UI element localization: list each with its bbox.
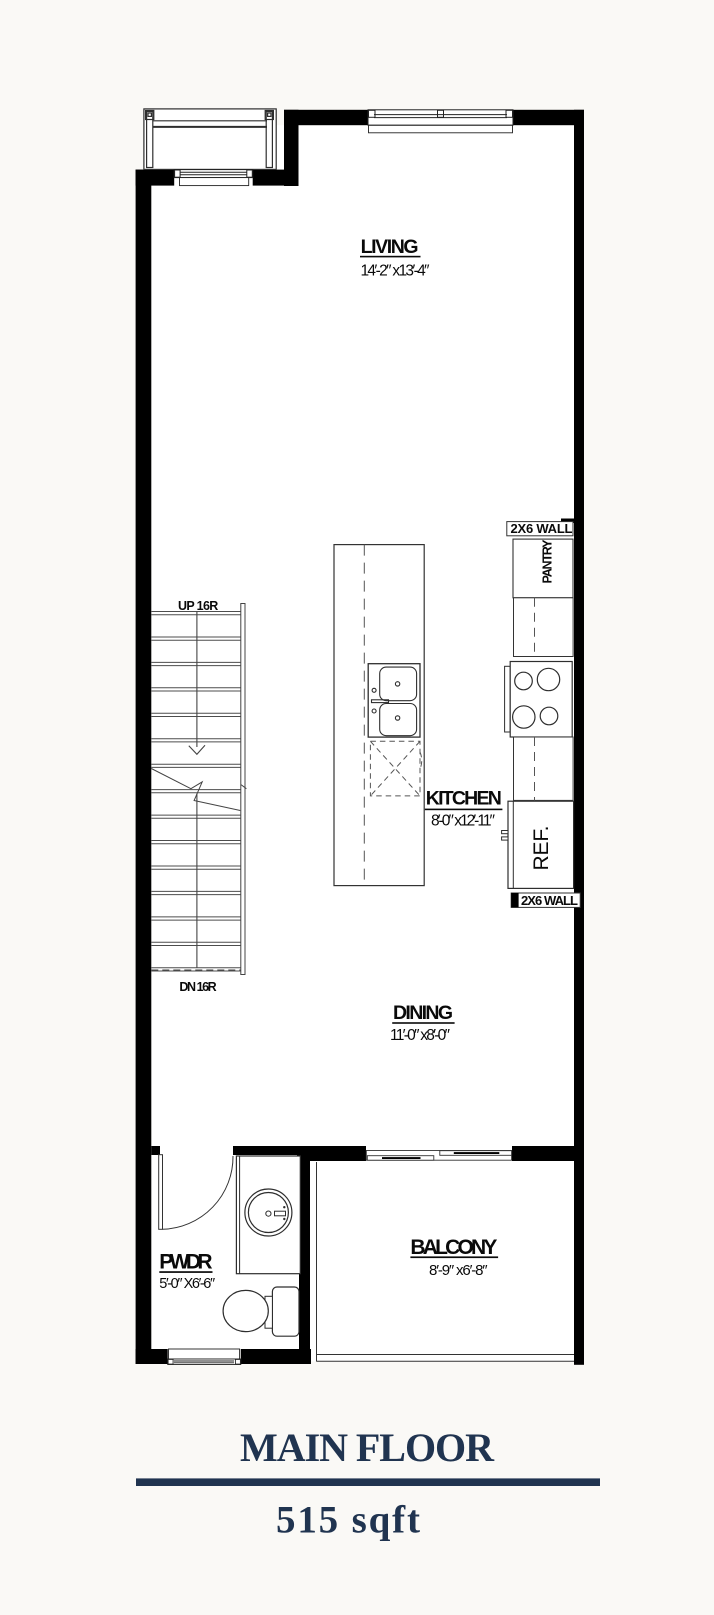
svg-text:2X6 WALL: 2X6 WALL (521, 893, 578, 908)
svg-text:PWDR: PWDR (159, 1250, 212, 1273)
svg-text:KITCHEN: KITCHEN (426, 788, 502, 810)
svg-text:DINING: DINING (393, 1002, 453, 1024)
svg-text:DN 16R: DN 16R (179, 980, 216, 994)
svg-text:REF.: REF. (530, 826, 553, 871)
svg-text:UP 16R: UP 16R (178, 599, 218, 613)
svg-text:8′-9″ x6′-8″: 8′-9″ x6′-8″ (429, 1262, 488, 1279)
svg-text:MAIN FLOOR: MAIN FLOOR (240, 1425, 495, 1470)
svg-text:11′-0″ x8′-0″: 11′-0″ x8′-0″ (390, 1027, 451, 1044)
svg-text:5′-0″ X6′-6″: 5′-0″ X6′-6″ (159, 1276, 215, 1292)
svg-text:BALCONY: BALCONY (410, 1236, 497, 1259)
svg-text:2X6 WALL: 2X6 WALL (511, 521, 573, 536)
svg-text:LIVING: LIVING (361, 236, 419, 258)
svg-text:14′-2″ x13′-4″: 14′-2″ x13′-4″ (361, 263, 431, 280)
svg-text:8′-0″ x12′-11″: 8′-0″ x12′-11″ (431, 813, 496, 830)
svg-text:515 sqft: 515 sqft (276, 1499, 420, 1542)
svg-text:PANTRY: PANTRY (541, 539, 555, 584)
